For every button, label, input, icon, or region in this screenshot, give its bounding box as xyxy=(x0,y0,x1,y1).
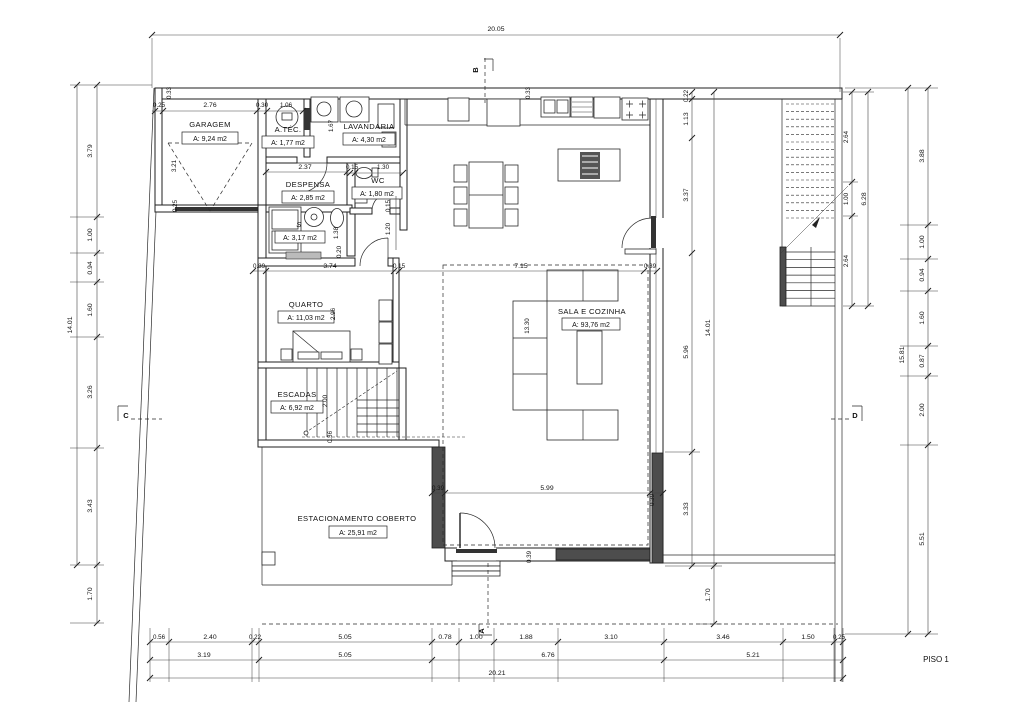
svg-text:0.15: 0.15 xyxy=(385,199,392,212)
stair-treads-below xyxy=(782,247,835,306)
escadas-south-wall xyxy=(258,440,439,447)
atec-door-leaf xyxy=(304,108,310,130)
section-marker-d: D xyxy=(831,406,862,421)
quarto-right-wall xyxy=(393,258,399,368)
svg-text:3.43: 3.43 xyxy=(87,499,94,512)
svg-text:0.36: 0.36 xyxy=(327,430,334,443)
room-label-estacionamento: ESTACIONAMENTO COBERTOA: 25,91 m2 xyxy=(298,514,417,538)
chair-icon xyxy=(454,187,467,204)
stove-icon xyxy=(622,98,648,120)
svg-text:0.22: 0.22 xyxy=(249,634,262,641)
entry-threshold xyxy=(456,549,497,553)
svg-text:0.25: 0.25 xyxy=(153,102,166,109)
garage-door xyxy=(175,207,258,211)
svg-text:2.00: 2.00 xyxy=(322,394,329,407)
svg-text:QUARTO: QUARTO xyxy=(289,300,324,309)
svg-text:5.05: 5.05 xyxy=(338,652,351,659)
svg-text:2.64: 2.64 xyxy=(843,254,850,267)
room-label-sala: SALA E COZINHAA: 93,76 m2 xyxy=(558,307,627,330)
svg-text:15.81: 15.81 xyxy=(899,346,906,363)
svg-text:0.94: 0.94 xyxy=(87,261,94,274)
svg-text:0.33: 0.33 xyxy=(525,86,532,99)
dim-chain-top: 20.05 xyxy=(149,26,843,92)
pillow-icon xyxy=(298,352,319,359)
svg-text:0.39: 0.39 xyxy=(644,263,657,270)
svg-text:3.21: 3.21 xyxy=(171,159,178,172)
svg-text:1.00: 1.00 xyxy=(87,228,94,241)
patio-step xyxy=(625,249,656,254)
svg-text:0.39: 0.39 xyxy=(526,550,533,563)
svg-text:0.78: 0.78 xyxy=(438,634,451,641)
room-label-wc: WCA: 1,80 m2 xyxy=(352,176,402,199)
svg-text:20.05: 20.05 xyxy=(487,26,504,33)
svg-text:0.39: 0.39 xyxy=(649,493,656,506)
quarto-bottom-wall xyxy=(258,362,399,368)
svg-text:ESCADAS: ESCADAS xyxy=(277,390,316,399)
svg-text:0.15: 0.15 xyxy=(393,263,406,270)
svg-text:SALA E COZINHA: SALA E COZINHA xyxy=(558,307,627,316)
svg-text:5.99: 5.99 xyxy=(540,485,553,492)
svg-text:1.20: 1.20 xyxy=(385,222,392,235)
escadas-right-wall xyxy=(399,368,406,447)
svg-text:A: 3,17 m2: A: 3,17 m2 xyxy=(283,235,317,242)
chair-icon xyxy=(454,209,467,226)
kitchen-partition-wall xyxy=(400,99,407,230)
quarto-door-swing xyxy=(360,238,388,266)
svg-text:A: 93,76 m2: A: 93,76 m2 xyxy=(572,322,610,329)
svg-text:5.05: 5.05 xyxy=(338,634,351,641)
svg-text:1.60: 1.60 xyxy=(919,311,926,324)
svg-text:3.33: 3.33 xyxy=(683,502,690,515)
stair-treads-above xyxy=(786,104,835,218)
carport-post xyxy=(262,552,275,565)
svg-text:3.46: 3.46 xyxy=(716,634,729,641)
svg-text:A.TÉC.: A.TÉC. xyxy=(275,125,302,134)
svg-text:3.79: 3.79 xyxy=(87,144,94,157)
chair-icon xyxy=(454,165,467,182)
svg-text:0.20: 0.20 xyxy=(336,245,343,258)
svg-text:2.40: 2.40 xyxy=(203,634,216,641)
svg-text:5.51: 5.51 xyxy=(919,532,926,545)
svg-text:A: 2,85 m2: A: 2,85 m2 xyxy=(291,195,325,202)
svg-text:1.00: 1.00 xyxy=(919,235,926,248)
dim-chain-bottom: 0.56 2.40 0.22 5.05 0.78 1.00 1.88 3.10 … xyxy=(147,628,846,682)
svg-text:2.96: 2.96 xyxy=(330,307,337,320)
svg-text:A: 9,24 m2: A: 9,24 m2 xyxy=(193,136,227,143)
svg-text:A: 6,92 m2: A: 6,92 m2 xyxy=(280,405,314,412)
svg-text:3.10: 3.10 xyxy=(604,634,617,641)
walls xyxy=(155,88,842,563)
dim-chain-stairs: 2.64 1.00 2.64 6.28 xyxy=(843,89,874,309)
svg-text:20.21: 20.21 xyxy=(488,670,505,677)
svg-text:0.56: 0.56 xyxy=(153,634,166,641)
entry-door-swing xyxy=(460,513,495,548)
svg-text:1.88: 1.88 xyxy=(519,634,532,641)
coffee-table-icon xyxy=(577,331,602,384)
svg-text:0.87: 0.87 xyxy=(919,354,926,367)
svg-text:D: D xyxy=(852,411,858,420)
svg-text:ESTACIONAMENTO COBERTO: ESTACIONAMENTO COBERTO xyxy=(298,514,417,523)
svg-text:5.21: 5.21 xyxy=(746,652,759,659)
svg-text:1.70: 1.70 xyxy=(87,587,94,600)
svg-text:0.33: 0.33 xyxy=(166,86,173,99)
svg-text:0.15: 0.15 xyxy=(346,164,359,171)
svg-text:1.67: 1.67 xyxy=(328,119,335,132)
room-label-lavandaria: LAVANDARIAA: 4,30 m2 xyxy=(343,122,395,145)
sheet-title: PISO 1 xyxy=(923,655,949,664)
svg-text:A: A xyxy=(477,628,486,634)
svg-text:7.15: 7.15 xyxy=(514,263,527,270)
svg-text:3.37: 3.37 xyxy=(683,188,690,201)
svg-text:13.30: 13.30 xyxy=(524,318,531,334)
room-label-despensa: DESPENSAA: 2,85 m2 xyxy=(282,180,334,203)
section-marker-c: C xyxy=(118,406,162,421)
svg-text:5.96: 5.96 xyxy=(683,345,690,358)
svg-text:1.13: 1.13 xyxy=(683,112,690,125)
dim-row-sala: 0.39 5.99 0.39 xyxy=(429,485,666,506)
s-room-counter xyxy=(286,252,321,259)
sofa-icon xyxy=(513,301,547,410)
svg-text:A: 11,03 m2: A: 11,03 m2 xyxy=(287,315,324,322)
svg-text:0.25: 0.25 xyxy=(172,199,179,212)
room-label-garagem: GARAGEMA: 9,24 m2 xyxy=(182,120,238,144)
svg-text:0.22: 0.22 xyxy=(683,89,690,102)
wardrobe-icon xyxy=(379,300,392,321)
svg-text:3.88: 3.88 xyxy=(919,149,926,162)
svg-text:3.19: 3.19 xyxy=(197,652,210,659)
svg-text:0.39: 0.39 xyxy=(253,263,266,270)
svg-text:0.30: 0.30 xyxy=(256,102,269,109)
nightstand-icon xyxy=(281,349,292,360)
svg-text:A: 4,30 m2: A: 4,30 m2 xyxy=(352,137,386,144)
dim-chain-inner-right: 0.22 1.13 3.37 5.96 3.33 14.01 1.70 xyxy=(665,89,722,627)
kitchen-unit xyxy=(487,99,520,126)
svg-text:A: 25,91 m2: A: 25,91 m2 xyxy=(339,530,377,537)
chair-icon xyxy=(505,209,518,226)
svg-text:1.06: 1.06 xyxy=(280,102,293,109)
exterior-stairs xyxy=(780,99,848,306)
sofa-icon xyxy=(547,410,618,440)
entry-step xyxy=(452,561,500,566)
chair-icon xyxy=(505,187,518,204)
svg-text:2.37: 2.37 xyxy=(298,164,311,171)
floor-plan-page: GARAGEMA: 9,24 m2 A.TÉC.A: 1,77 m2 LAVAN… xyxy=(0,0,1010,720)
entry-opening xyxy=(457,546,496,563)
svg-text:LAVANDARIA: LAVANDARIA xyxy=(344,122,396,131)
kitchen-unit xyxy=(594,97,620,118)
room-label-quarto: QUARTOA: 11,03 m2 xyxy=(278,300,334,323)
chair-icon xyxy=(505,165,518,182)
svg-text:2.00: 2.00 xyxy=(919,403,926,416)
svg-text:1.38: 1.38 xyxy=(333,226,340,239)
patio-door-leaf xyxy=(651,216,656,248)
garage-right-wall xyxy=(258,99,266,212)
svg-text:0.25: 0.25 xyxy=(833,634,846,641)
dim-chain-right: 3.88 1.00 0.94 1.60 0.87 2.00 5.51 15.81 xyxy=(845,85,938,637)
fridge-icon xyxy=(448,98,469,121)
svg-text:B: B xyxy=(471,67,480,73)
svg-text:GARAGEM: GARAGEM xyxy=(189,120,231,129)
svg-text:WC: WC xyxy=(371,176,385,185)
patio-door-opening xyxy=(648,218,665,248)
entry-step xyxy=(452,566,500,571)
svg-text:2.76: 2.76 xyxy=(203,102,216,109)
svg-text:1.70: 1.70 xyxy=(705,588,712,601)
svg-text:3.74: 3.74 xyxy=(323,263,336,270)
svg-text:1.00: 1.00 xyxy=(843,192,850,205)
svg-text:DESPENSA: DESPENSA xyxy=(286,180,331,189)
svg-text:0.39: 0.39 xyxy=(432,485,445,492)
svg-text:2.64: 2.64 xyxy=(843,130,850,143)
svg-text:14.01: 14.01 xyxy=(67,316,74,333)
svg-text:A: 1,80 m2: A: 1,80 m2 xyxy=(360,191,394,198)
svg-text:6.76: 6.76 xyxy=(541,652,554,659)
garage-door-swing xyxy=(168,143,252,211)
patio-door-swing xyxy=(622,218,652,248)
svg-text:0.94: 0.94 xyxy=(919,268,926,281)
west-inner-wall xyxy=(258,205,266,447)
room-label-escadas: ESCADASA: 6,92 m2 xyxy=(271,390,323,413)
svg-text:S: S xyxy=(296,220,301,229)
svg-text:A: 1,77 m2: A: 1,77 m2 xyxy=(271,140,305,147)
svg-text:1.30: 1.30 xyxy=(377,164,390,171)
svg-text:1.60: 1.60 xyxy=(87,303,94,316)
floor-plan-drawing: GARAGEMA: 9,24 m2 A.TÉC.A: 1,77 m2 LAVAN… xyxy=(0,0,1010,720)
dim-row-despensa: 2.37 xyxy=(263,164,350,175)
svg-text:3.26: 3.26 xyxy=(87,385,94,398)
stair-direction-arrow xyxy=(812,217,820,228)
svg-text:6.28: 6.28 xyxy=(861,192,868,205)
entry-step xyxy=(452,571,500,576)
nightstand-icon xyxy=(351,349,362,360)
pillow-icon xyxy=(321,352,342,359)
sofa-icon xyxy=(547,270,618,301)
svg-text:14.01: 14.01 xyxy=(705,319,712,336)
stair-break-line xyxy=(780,186,848,254)
svg-text:C: C xyxy=(123,411,129,420)
top-wall xyxy=(155,88,842,99)
dim-chain-left: 3.79 1.00 0.94 1.60 3.26 3.43 1.70 14.01 xyxy=(67,82,152,626)
svg-text:1.50: 1.50 xyxy=(801,634,814,641)
s-room-basin-icon xyxy=(331,209,344,228)
